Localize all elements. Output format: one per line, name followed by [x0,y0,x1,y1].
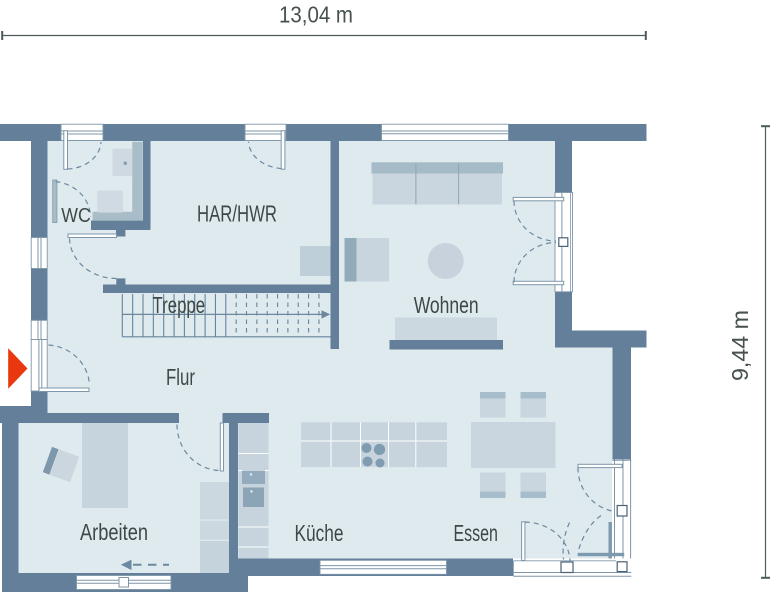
svg-text:Essen: Essen [453,520,498,546]
svg-text:Wohnen: Wohnen [414,292,479,318]
svg-text:Treppe: Treppe [153,292,206,318]
svg-text:HAR/HWR: HAR/HWR [197,201,277,227]
svg-text:Flur: Flur [166,364,195,390]
svg-text:Küche: Küche [295,520,344,546]
svg-text:9,44 m: 9,44 m [727,310,753,381]
svg-text:Arbeiten: Arbeiten [80,519,148,545]
svg-text:WC: WC [61,205,91,227]
svg-text:13,04 m: 13,04 m [279,1,353,27]
